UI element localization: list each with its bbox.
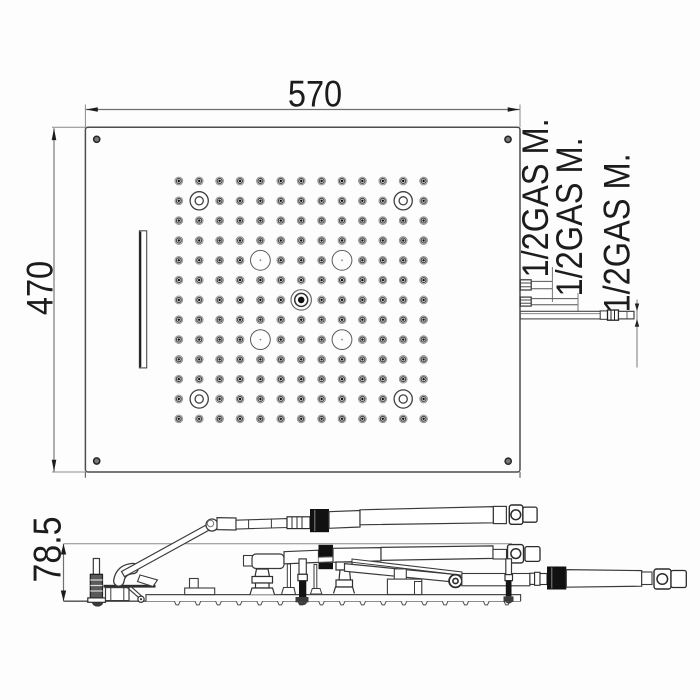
svg-text:1/2GAS M.: 1/2GAS M. bbox=[597, 153, 638, 312]
svg-text:78.5: 78.5 bbox=[25, 516, 69, 582]
svg-text:1/2GAS M.: 1/2GAS M. bbox=[549, 137, 590, 296]
svg-text:570: 570 bbox=[288, 74, 342, 115]
svg-text:470: 470 bbox=[19, 261, 60, 315]
